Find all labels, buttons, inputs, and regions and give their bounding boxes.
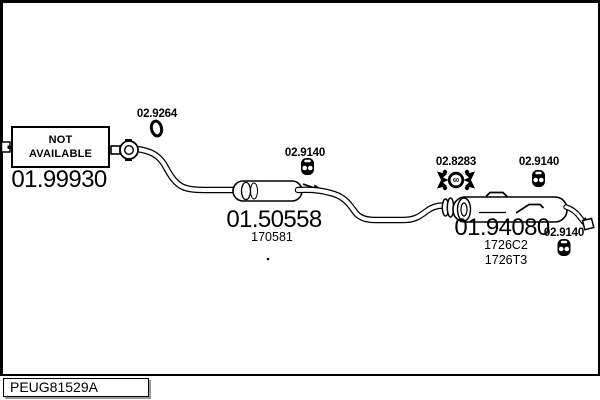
- part-number-01-99930: 01.99930: [6, 166, 112, 194]
- part-number-02-9140-mid: 02.9140: [280, 147, 330, 159]
- drawing-code-box: PEUG81529A: [3, 378, 149, 397]
- front-pipe: [137, 149, 242, 190]
- reference-dot: [267, 258, 270, 261]
- exhaust-diagram-page: 60 NOT AVAILABLE 01.99930 02.9264 02.914…: [0, 0, 600, 400]
- not-available-box: NOT AVAILABLE: [11, 126, 110, 168]
- rubber-hanger-icon-rear: [532, 170, 545, 187]
- oe-ref-1726C2: 1726C2: [476, 238, 536, 252]
- centre-silencer-shape: [233, 181, 302, 201]
- oe-ref-170581: 170581: [242, 230, 302, 244]
- rubber-mount-icon: 60: [437, 170, 475, 190]
- part-number-02-9264: 02.9264: [132, 108, 182, 120]
- exhaust-line-drawing: 60: [0, 0, 600, 400]
- not-available-line1: NOT: [13, 133, 108, 147]
- rubber-hanger-icon-mid: [301, 158, 314, 175]
- part-number-02-9140-rear: 02.9140: [514, 156, 564, 168]
- rubber-hanger-icon-tail: [558, 239, 571, 256]
- drawing-code-text: PEUG81529A: [10, 379, 98, 395]
- part-number-02-8283: 02.8283: [431, 156, 481, 168]
- not-available-line2: AVAILABLE: [13, 147, 108, 161]
- mount-size-text: 60: [453, 178, 459, 184]
- ball-joint-flange: [111, 139, 138, 161]
- o-ring-gasket-icon: [150, 120, 163, 137]
- frame-tab: [2, 142, 12, 152]
- oe-ref-1726T3: 1726T3: [476, 253, 536, 267]
